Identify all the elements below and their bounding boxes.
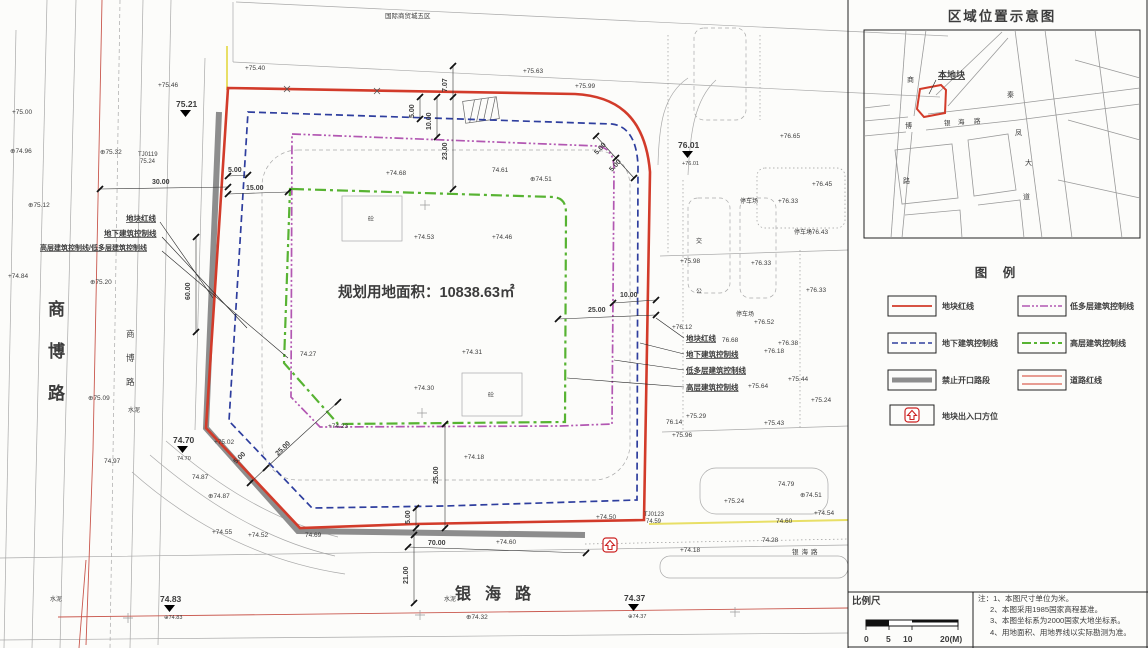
annotation-text: TJ0119 — [138, 152, 158, 158]
annotation-text: 21.00 — [403, 566, 410, 584]
annotation-text: 74.28 — [762, 537, 779, 544]
annotation-text: 74.60 — [776, 518, 793, 525]
legend-label: 禁止开口路段 — [941, 375, 990, 385]
note-line: 3、本图坐标系为2000国家大地坐标系。 — [990, 615, 1125, 625]
scale-tick: 5 — [886, 634, 891, 644]
parcel-entrance-icon — [603, 538, 617, 552]
legend-label: 道路红线 — [1070, 375, 1102, 385]
annotation-text: +76.45 — [812, 181, 832, 188]
benchmark-value: 74.70 — [173, 435, 195, 445]
benchmark-triangle-icon — [164, 605, 175, 612]
scale-label: 比例尺 — [852, 595, 881, 607]
tick-cross-layer — [97, 63, 740, 623]
inset-label: 商 — [907, 75, 914, 84]
annotation-text: 15.00 — [246, 185, 264, 192]
annotation-text: ⊕74.87 — [208, 493, 230, 500]
benchmark-sublabel: ⊕74.83 — [164, 615, 182, 621]
legend-label: 高层建筑控制线 — [1070, 338, 1126, 348]
annotation-text: 公 — [696, 288, 702, 295]
annotation-text: 银海路 — [455, 584, 545, 603]
inset-label: 银 — [944, 118, 951, 127]
note-line: 2、本图采用1985国家高程基准。 — [990, 604, 1102, 614]
annotation-text: 74.61 — [492, 167, 509, 174]
annotation-text: 10.00 — [426, 112, 433, 130]
annotation-text: +75.64 — [748, 383, 768, 390]
annotation-text: +74.46 — [492, 234, 512, 241]
grid-cross — [730, 607, 740, 617]
annotation-text: +76.38 — [778, 340, 798, 347]
dimension-tick — [263, 465, 269, 471]
annotation-text: ⊕75.20 — [90, 279, 112, 286]
annotation-text: 地下建筑控制线 — [686, 349, 739, 359]
annotation-text: +74.50 — [596, 514, 616, 521]
annotation-text: 交 — [696, 237, 702, 245]
notes: 注：1、本图尺寸单位为米。 2、本图采用1985国家高程基准。 3、本图坐标系为… — [978, 593, 1131, 637]
annotation-text: 国际商贸城五区 — [385, 11, 431, 20]
annotation-text: 停车场 — [740, 197, 758, 205]
annotation-text: ⊕74.32 — [466, 614, 488, 621]
annotation-text: +75.96 — [672, 432, 692, 439]
legend-label: 地块红线 — [942, 301, 974, 311]
annotation-text: ⊕75.09 — [88, 395, 110, 402]
benchmark-triangle-icon — [682, 151, 693, 158]
annotation-text: 博 — [48, 341, 65, 361]
scale-tick: 20(M) — [940, 634, 962, 644]
note-line: 注：1、本图尺寸单位为米。 — [978, 593, 1073, 603]
annotation-text: 60.00 — [185, 282, 192, 300]
annotation-text: +75.29 — [686, 413, 706, 420]
annotation-text: 砼 — [488, 391, 494, 399]
inset-label: 道 — [1023, 192, 1030, 201]
benchmark-value: 74.83 — [160, 594, 182, 604]
annotation-text: +76.52 — [754, 319, 774, 326]
annotation-text: 停车场 — [736, 310, 754, 318]
annotation-text: +74.23 — [328, 423, 348, 430]
inset-label: 海 — [958, 117, 965, 126]
annotation-text: +75.46 — [158, 82, 178, 89]
annotation-text: 高层建筑控制线/低多层建筑控制线 — [40, 243, 147, 252]
annotation-text: +75.00 — [12, 109, 32, 116]
annotation-text: +74.53 — [414, 234, 434, 241]
drawing-svg: 区域位置示意图 图 例 规划用地面积：10838.63㎡ 地块红线 地下建筑控制… — [0, 0, 1148, 648]
annotation-text: +76.33 — [806, 287, 826, 294]
inset-map — [864, 30, 1140, 238]
grid-cross — [420, 200, 430, 210]
annotation-text: 10.00 — [620, 292, 638, 299]
annotation-text: 75.24 — [140, 159, 156, 165]
grid-cross — [123, 613, 133, 623]
inset-title: 区域位置示意图 — [948, 8, 1057, 24]
inset-label: 路 — [903, 176, 910, 185]
annotation-text: 74.59 — [646, 519, 662, 525]
annotation-text: 70.00 — [428, 540, 446, 547]
inset-label: 秦 — [1007, 90, 1014, 99]
annotation-text: +75.98 — [680, 258, 700, 265]
annotation-text: 路 — [126, 377, 135, 387]
inset-label: 博 — [905, 121, 912, 130]
plan-text-layer: +75.40+75.63+75.99+75.46⊕75.12+75.00⊕74.… — [8, 11, 834, 621]
annotation-text: 5.00 — [405, 510, 412, 524]
annotation-text: +74.18 — [464, 454, 484, 461]
annotation-text: +75.99 — [575, 83, 595, 90]
benchmark-triangle-icon — [180, 110, 191, 117]
annotation-text: 地下建筑控制线 — [104, 228, 157, 238]
annotation-text: +76.33 — [751, 260, 771, 267]
annotation-text: ⊕75.32 — [100, 149, 122, 156]
annotation-text: +74.60 — [496, 539, 516, 546]
annotation-text: 低多层建筑控制线 — [685, 365, 746, 375]
grid-cross — [415, 610, 425, 620]
annotation-text: 23.00 — [442, 142, 449, 160]
annotation-text: 砼 — [368, 215, 374, 223]
annotation-text: +75.24 — [811, 397, 831, 404]
annotation-text: 商 — [48, 299, 65, 319]
callout-leaders — [160, 222, 684, 387]
annotation-text: 地块红线 — [126, 213, 156, 223]
annotation-text: 停车场 — [794, 228, 812, 236]
annotation-text: +74.52 — [248, 532, 268, 539]
inset-label: 凤 — [1015, 129, 1022, 137]
area-label: 规划用地面积：10838.63㎡ — [338, 283, 515, 301]
annotation-text: ⊕74.96 — [10, 148, 32, 155]
annotation-text: 25.00 — [588, 307, 606, 314]
annotation-text: +74.18 — [680, 547, 700, 554]
legend-label: 地下建筑控制线 — [942, 338, 998, 348]
scale-tick: 10 — [903, 634, 913, 644]
scale-bar: 比例尺 0 5 10 20(M) — [852, 595, 962, 644]
benchmark-value: 76.01 — [678, 140, 700, 150]
inset-map-frame — [864, 30, 1140, 238]
annotation-text: ⊕74.51 — [530, 176, 552, 183]
annotation-text: 5.00 — [608, 159, 622, 174]
annotation-text: 地块红线 — [686, 333, 716, 343]
legend-label: 地块出入口方位 — [942, 411, 998, 421]
annotation-text: 路 — [48, 383, 66, 403]
annotation-text: 商 — [126, 329, 135, 339]
annotation-text: +76.18 — [764, 348, 784, 355]
scale-tick: 0 — [864, 634, 869, 644]
annotation-text: 74.27 — [300, 351, 317, 358]
annotation-text: +74.54 — [814, 510, 834, 517]
benchmark-value: 74.37 — [624, 593, 646, 603]
annotation-text: +75.02 — [214, 439, 234, 446]
annotation-text: 74.87 — [192, 474, 209, 481]
side-panel — [848, 0, 1148, 648]
annotation-text: ⊕74.51 — [800, 492, 822, 499]
annotation-text: +76.33 — [778, 198, 798, 205]
annotation-text: +75.40 — [245, 65, 265, 72]
inset-label: 路 — [974, 116, 981, 125]
annotation-text: 74.97 — [104, 458, 121, 465]
annotation-text: 25.00 — [275, 440, 293, 457]
inset-label: 本地块 — [938, 69, 966, 80]
benchmark-sublabel: ⊕74.37 — [628, 614, 646, 620]
annotation-text: 25.00 — [433, 466, 440, 484]
dimension-tick — [335, 399, 341, 405]
annotation-text: 博 — [126, 353, 135, 363]
utility-line-yellow — [649, 520, 848, 524]
annotation-text: +75.44 — [788, 376, 808, 383]
annotation-text: 水泥 — [50, 595, 62, 603]
annotation-text: 74.69 — [305, 532, 322, 539]
annotation-text: 水泥 — [128, 406, 140, 414]
annotation-text: +74.30 — [414, 385, 434, 392]
annotation-text: +74.55 — [212, 529, 232, 536]
annotation-text: +75.63 — [523, 68, 543, 75]
grid-cross — [417, 408, 427, 418]
annotation-text: 5.00 — [409, 104, 416, 118]
annotation-text: +76.65 — [780, 133, 800, 140]
annotation-text: +74.84 — [8, 273, 28, 280]
annotation-text: +74.68 — [386, 170, 406, 177]
legend-title: 图 例 — [975, 265, 1021, 280]
annotation-text: 高层建筑控制线 — [686, 382, 739, 392]
annotation-text: +75.24 — [724, 498, 744, 505]
inset-label: 大 — [1025, 158, 1032, 167]
annotation-text: 76.68 — [722, 337, 739, 344]
benchmark-sublabel: +76.01 — [682, 161, 699, 167]
legend-label: 低多层建筑控制线 — [1069, 301, 1134, 311]
annotation-text: 银海路 — [792, 547, 821, 556]
legend: 地块红线 地下建筑控制线 禁止开口路段 地块出入口方位 低多层建筑控制线 高层建… — [888, 296, 1134, 425]
annotation-text: +76.12 — [672, 324, 692, 331]
benchmark-value: 75.21 — [176, 99, 198, 109]
site-plan-drawing: 区域位置示意图 图 例 规划用地面积：10838.63㎡ 地块红线 地下建筑控制… — [0, 0, 1148, 648]
annotation-text: 74.79 — [778, 481, 795, 488]
annotation-text: 7.07 — [442, 78, 449, 92]
annotation-text: 30.00 — [152, 179, 170, 186]
annotation-text: +74.31 — [462, 349, 482, 356]
legend-entrance-icon — [905, 408, 919, 422]
annotation-text: TJ0123 — [644, 512, 665, 518]
annotation-text: ⊕75.12 — [28, 202, 50, 209]
underground-control-line — [229, 112, 638, 508]
lowrise-control-line — [291, 134, 614, 427]
benchmark-sublabel: 74.70 — [177, 456, 191, 462]
annotation-text: +75.43 — [764, 420, 784, 427]
annotation-text: 76.14 — [666, 419, 683, 426]
note-line: 4、用地面积、用地界线以实际勘测为准。 — [990, 627, 1131, 637]
